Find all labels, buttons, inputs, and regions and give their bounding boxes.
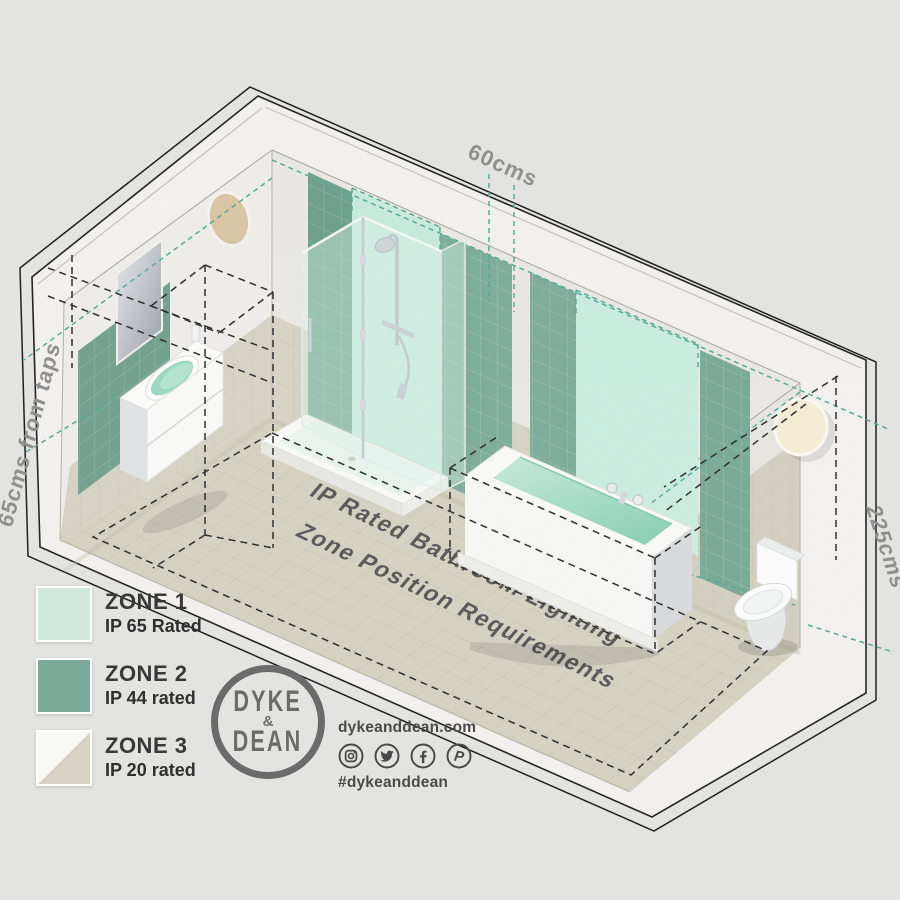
legend-item-zone2: ZONE 2 IP 44 rated (36, 658, 202, 714)
zone1-label: ZONE 1 (105, 589, 202, 615)
zone3-swatch (36, 730, 92, 786)
zone1-swatch (36, 586, 92, 642)
zone1-rating: IP 65 Rated (105, 615, 202, 637)
hashtag-text[interactable]: #dykeanddean (338, 774, 476, 792)
dyke-and-dean-logo: DYKE & DEAN (211, 665, 325, 779)
social-icons: P (338, 743, 476, 769)
website-url[interactable]: dykeanddean.com (338, 719, 476, 737)
twitter-icon[interactable] (374, 743, 400, 769)
zone-legend: ZONE 1 IP 65 Rated ZONE 2 IP 44 rated ZO… (36, 586, 202, 802)
zone3-label: ZONE 3 (105, 733, 196, 759)
facebook-icon[interactable] (410, 743, 436, 769)
legend-item-zone3: ZONE 3 IP 20 rated (36, 730, 202, 786)
svg-text:P: P (453, 749, 465, 766)
pinterest-icon[interactable]: P (446, 743, 472, 769)
zone2-label: ZONE 2 (105, 661, 196, 687)
instagram-icon[interactable] (338, 743, 364, 769)
logo-word-dean: DEAN (233, 730, 303, 755)
legend-item-zone1: ZONE 1 IP 65 Rated (36, 586, 202, 642)
zone2-rating: IP 44 rated (105, 687, 196, 709)
social-block: dykeanddean.com P #dykeanddean (338, 719, 476, 792)
zone2-swatch (36, 658, 92, 714)
dimension-label-top: 60cms (464, 139, 541, 192)
zone3-rating: IP 20 rated (105, 759, 196, 781)
logo-word-dyke: DYKE (234, 690, 303, 715)
infographic-canvas: IP Rated Bathroom Lighting Zone Position… (0, 0, 900, 900)
